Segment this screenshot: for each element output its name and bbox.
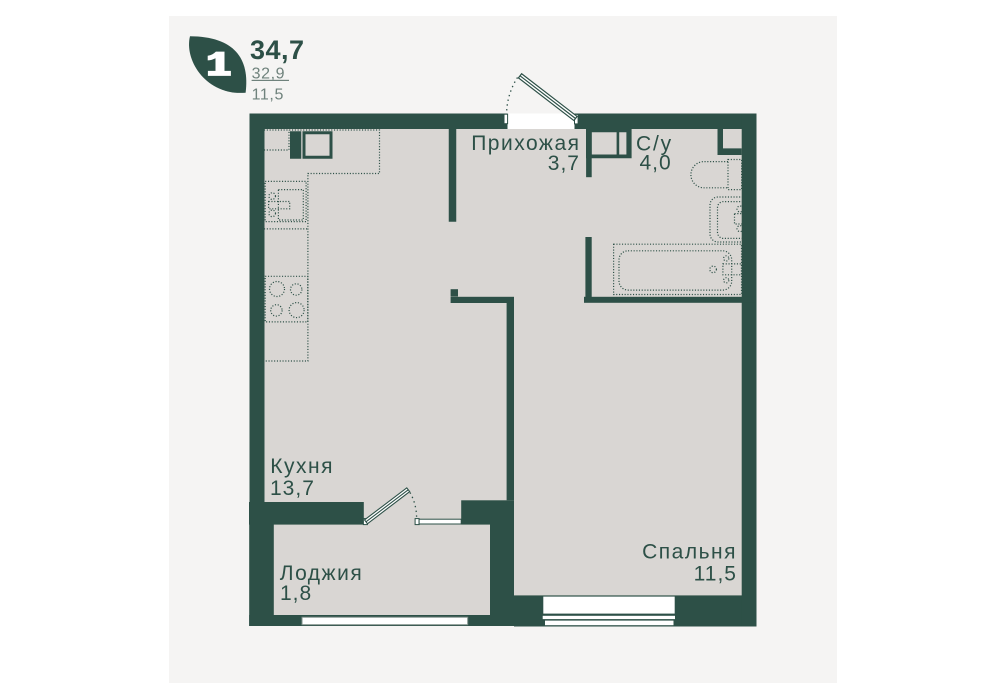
- svg-text:4,0: 4,0: [639, 152, 671, 175]
- svg-text:13,7: 13,7: [270, 477, 315, 500]
- svg-text:11,5: 11,5: [694, 563, 737, 586]
- svg-text:11,5: 11,5: [252, 86, 284, 103]
- svg-text:Кухня: Кухня: [270, 455, 334, 478]
- svg-text:3,7: 3,7: [548, 152, 580, 175]
- svg-text:1,8: 1,8: [280, 582, 312, 605]
- svg-text:34,7: 34,7: [250, 35, 305, 65]
- svg-text:Спальня: Спальня: [642, 541, 737, 564]
